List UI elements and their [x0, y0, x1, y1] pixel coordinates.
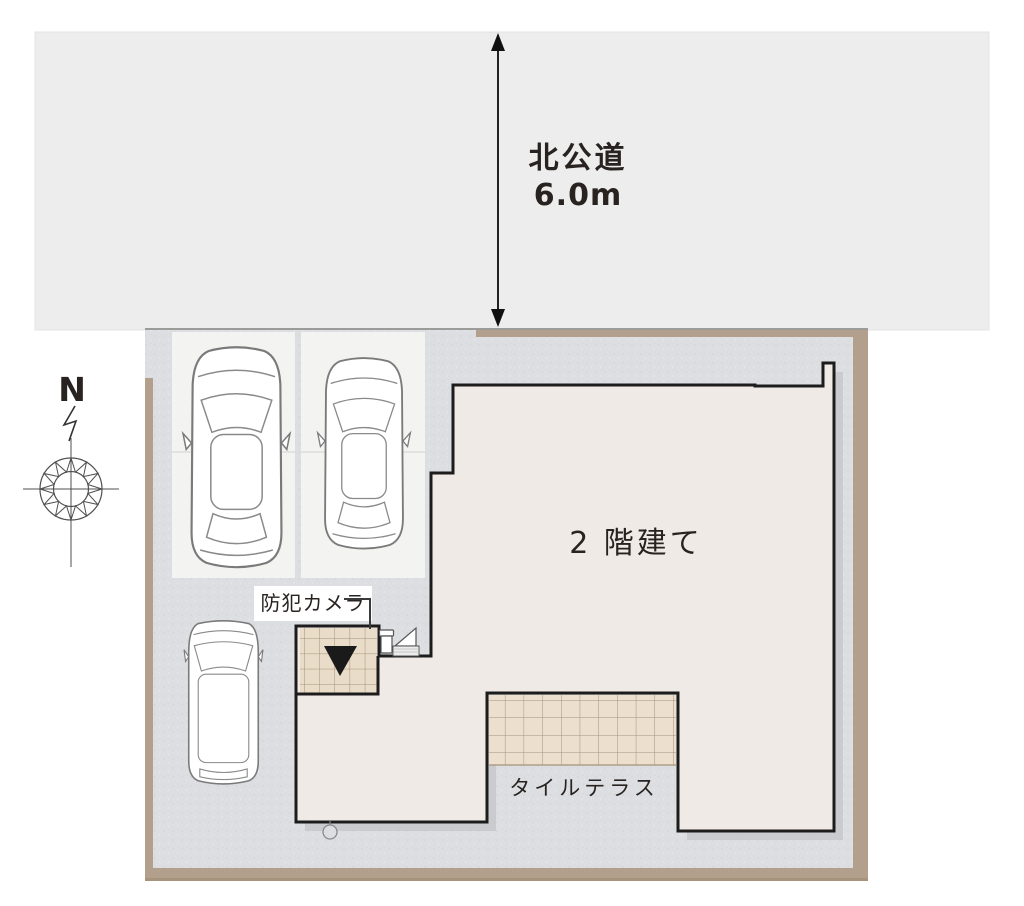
compass-rose-icon	[23, 406, 119, 567]
tile-terrace-tiles	[489, 695, 676, 765]
site-plan: 北公道 6.0m N 2 階建て 防犯カメラ タイルテラス	[0, 0, 1024, 906]
plan-drawing	[0, 0, 1024, 906]
north-label: N	[50, 370, 94, 409]
van-car-icon	[184, 621, 263, 784]
tile-terrace-label: タイルテラス	[484, 772, 684, 802]
road-name: 北公道	[498, 140, 658, 177]
north-zigzag-icon	[64, 406, 76, 441]
road-label: 北公道 6.0m	[498, 140, 658, 214]
hatchback-car-icon	[318, 358, 411, 549]
building-label: 2 階建て	[516, 518, 756, 562]
sedan-car-icon	[183, 347, 290, 567]
road-width-dimension: 6.0m	[498, 177, 658, 214]
security-camera-callout-line	[344, 598, 371, 629]
